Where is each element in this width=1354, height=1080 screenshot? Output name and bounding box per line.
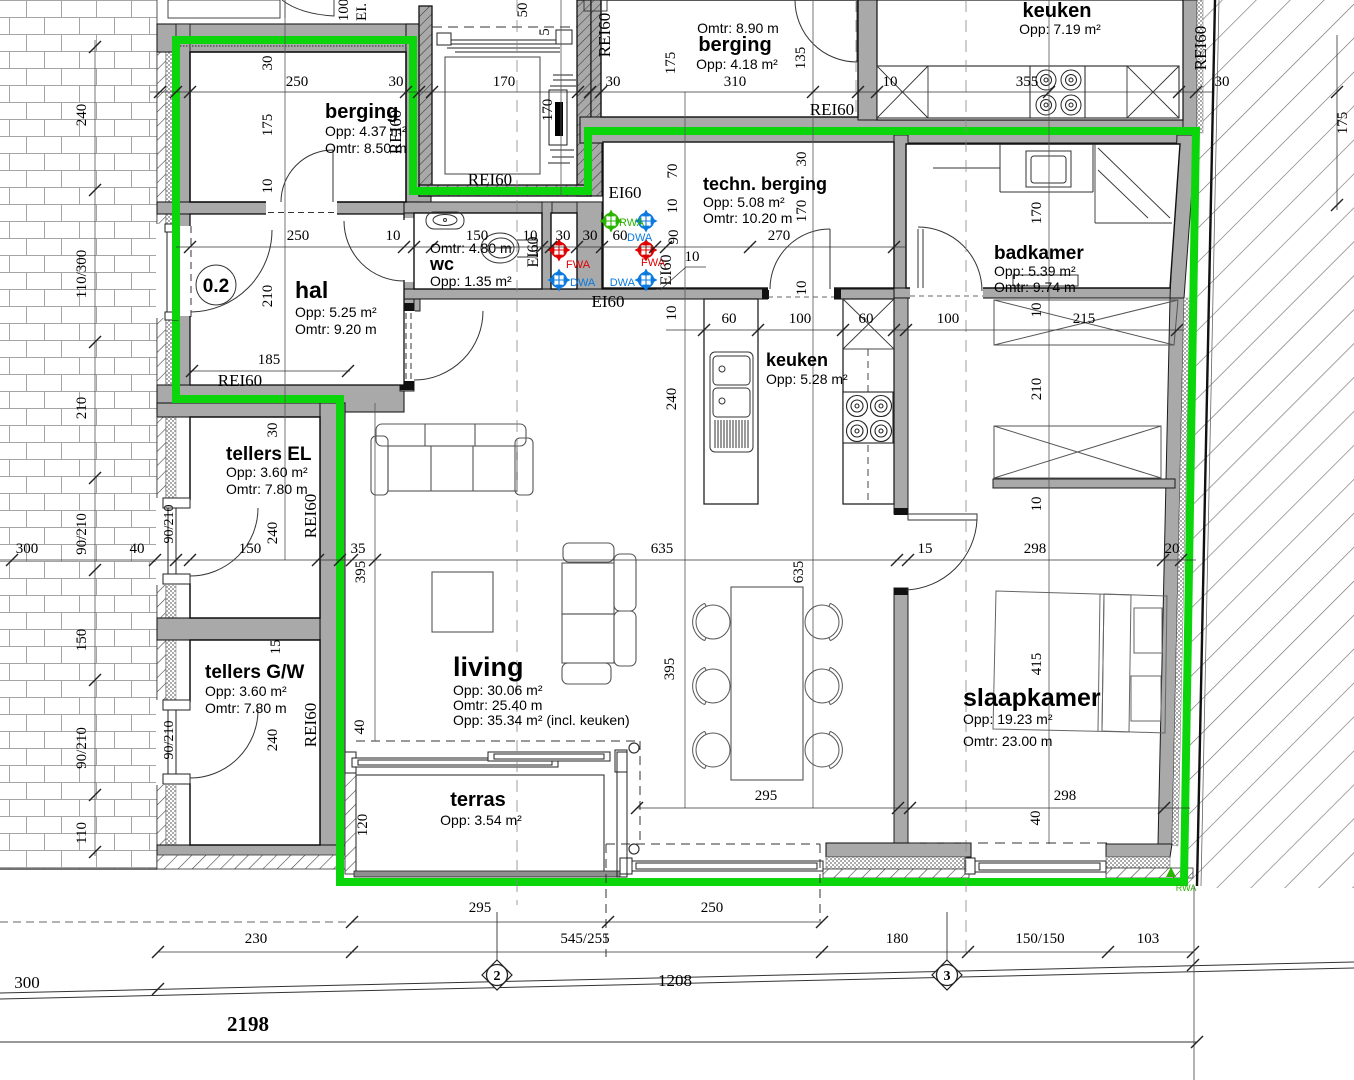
- svg-text:310: 310: [724, 74, 747, 90]
- svg-text:635: 635: [651, 541, 674, 557]
- svg-text:10: 10: [794, 281, 810, 296]
- svg-text:15: 15: [918, 541, 933, 557]
- svg-text:150: 150: [74, 629, 90, 652]
- svg-text:REI60: REI60: [468, 170, 512, 189]
- svg-text:Omtr: 7.80 m: Omtr: 7.80 m: [205, 700, 287, 716]
- svg-text:240: 240: [664, 388, 680, 411]
- svg-text:keuken: keuken: [1023, 0, 1092, 22]
- svg-text:30: 30: [794, 152, 810, 167]
- svg-text:30: 30: [1215, 74, 1230, 90]
- svg-text:110/300: 110/300: [74, 250, 90, 299]
- svg-text:545/255: 545/255: [560, 931, 609, 947]
- svg-text:355: 355: [1016, 74, 1039, 90]
- svg-text:20: 20: [1165, 541, 1180, 557]
- svg-text:tellers G/W: tellers G/W: [205, 662, 304, 683]
- svg-text:35: 35: [351, 541, 366, 557]
- svg-text:150: 150: [239, 541, 262, 557]
- svg-text:100: 100: [937, 311, 960, 327]
- svg-text:badkamer: badkamer: [994, 243, 1084, 264]
- svg-text:10: 10: [685, 249, 700, 265]
- svg-text:Opp: 35.34 m² (incl. keuken): Opp: 35.34 m² (incl. keuken): [453, 712, 630, 728]
- svg-text:90/210: 90/210: [74, 513, 90, 555]
- svg-text:REI60: REI60: [1191, 26, 1210, 70]
- svg-text:90/210: 90/210: [74, 727, 90, 769]
- svg-text:DWA: DWA: [627, 232, 653, 244]
- svg-text:2198: 2198: [227, 1012, 269, 1036]
- svg-text:298: 298: [1054, 788, 1077, 804]
- svg-text:90: 90: [666, 230, 682, 245]
- svg-text:EI60: EI60: [608, 183, 641, 202]
- svg-text:175: 175: [663, 52, 679, 75]
- svg-text:60: 60: [613, 228, 628, 244]
- svg-text:Opp: 4.18 m²: Opp: 4.18 m²: [696, 56, 778, 72]
- svg-text:FWA: FWA: [566, 259, 591, 271]
- svg-text:berging: berging: [325, 101, 398, 123]
- svg-text:103: 103: [1137, 931, 1160, 947]
- svg-text:REI60: REI60: [301, 494, 320, 538]
- svg-text:REI60: REI60: [810, 100, 854, 119]
- svg-text:Opp: 1.35 m²: Opp: 1.35 m²: [430, 273, 512, 289]
- svg-text:Omtr: 23.00 m: Omtr: 23.00 m: [963, 733, 1052, 749]
- svg-text:395: 395: [662, 658, 678, 681]
- svg-text:90/210: 90/210: [162, 721, 177, 760]
- svg-text:5: 5: [537, 28, 553, 36]
- svg-text:70: 70: [665, 164, 681, 179]
- svg-text:10: 10: [1029, 303, 1045, 318]
- svg-text:Omtr: 7.80 m: Omtr: 7.80 m: [226, 481, 308, 497]
- svg-text:3: 3: [944, 969, 951, 984]
- svg-text:30: 30: [583, 228, 598, 244]
- svg-text:110: 110: [74, 822, 90, 844]
- svg-text:Opp: 5.25 m²: Opp: 5.25 m²: [295, 304, 377, 320]
- svg-text:Opp: 30.06 m²: Opp: 30.06 m²: [453, 682, 543, 698]
- svg-text:135: 135: [793, 47, 809, 70]
- svg-text:150/150: 150/150: [1015, 931, 1064, 947]
- svg-text:10: 10: [1029, 497, 1045, 512]
- svg-text:REI60: REI60: [301, 703, 320, 747]
- svg-text:10: 10: [386, 228, 401, 244]
- svg-text:40: 40: [352, 720, 368, 735]
- svg-text:REI60: REI60: [595, 13, 614, 57]
- svg-text:wc: wc: [429, 254, 454, 274]
- svg-text:90/210: 90/210: [162, 505, 177, 544]
- svg-text:230: 230: [245, 931, 268, 947]
- svg-text:395: 395: [353, 561, 369, 584]
- svg-text:Omtr: 9.20 m: Omtr: 9.20 m: [295, 321, 377, 337]
- svg-text:Opp: 19.23 m²: Opp: 19.23 m²: [963, 711, 1053, 727]
- svg-text:Opp: 3.60 m²: Opp: 3.60 m²: [205, 683, 287, 699]
- svg-text:185: 185: [258, 352, 281, 368]
- svg-text:EI60: EI60: [658, 254, 675, 285]
- svg-text:10: 10: [664, 306, 680, 321]
- svg-text:295: 295: [469, 900, 492, 916]
- svg-text:170: 170: [794, 200, 810, 223]
- svg-text:2: 2: [494, 969, 501, 984]
- svg-text:0.2: 0.2: [203, 276, 229, 297]
- svg-text:635: 635: [791, 561, 807, 584]
- svg-text:240: 240: [265, 522, 281, 545]
- svg-text:40: 40: [130, 541, 145, 557]
- svg-text:EI.: EI.: [354, 3, 370, 21]
- svg-text:240: 240: [265, 729, 281, 752]
- svg-text:30: 30: [606, 74, 621, 90]
- svg-text:30: 30: [260, 56, 276, 71]
- svg-text:210: 210: [1029, 378, 1045, 401]
- svg-text:10: 10: [883, 74, 898, 90]
- svg-text:40: 40: [1028, 811, 1044, 826]
- svg-text:DWA: DWA: [570, 277, 596, 289]
- svg-text:120: 120: [355, 814, 371, 837]
- svg-text:slaapkamer: slaapkamer: [963, 684, 1101, 712]
- svg-text:techn. berging: techn. berging: [703, 174, 827, 194]
- svg-text:30: 30: [556, 228, 571, 244]
- svg-text:EI60: EI60: [525, 236, 542, 267]
- svg-text:300: 300: [16, 541, 39, 557]
- svg-text:215: 215: [1073, 311, 1096, 327]
- svg-text:10: 10: [260, 179, 276, 194]
- svg-text:keuken: keuken: [766, 350, 828, 370]
- svg-text:298: 298: [1024, 541, 1047, 557]
- svg-text:DWA: DWA: [610, 277, 636, 289]
- svg-text:berging: berging: [698, 34, 771, 56]
- svg-text:Omtr: 10.20 m: Omtr: 10.20 m: [703, 210, 792, 226]
- svg-text:415: 415: [1029, 653, 1045, 676]
- svg-text:300: 300: [14, 973, 40, 992]
- svg-text:Omtr: 8.50 m: Omtr: 8.50 m: [325, 140, 407, 156]
- svg-text:Opp: 5.08 m²: Opp: 5.08 m²: [703, 194, 785, 210]
- svg-text:15: 15: [268, 640, 284, 655]
- svg-text:Opp: 4.37 m²: Opp: 4.37 m²: [325, 123, 407, 139]
- svg-text:170: 170: [493, 74, 516, 90]
- svg-text:30: 30: [265, 423, 281, 438]
- svg-text:tellers EL: tellers EL: [226, 444, 312, 465]
- svg-text:Opp: 5.39 m²: Opp: 5.39 m²: [994, 263, 1076, 279]
- svg-text:210: 210: [260, 285, 276, 308]
- svg-text:EI60: EI60: [591, 292, 624, 311]
- svg-text:living: living: [453, 652, 524, 682]
- svg-text:295: 295: [755, 788, 778, 804]
- svg-text:Opp: 3.60 m²: Opp: 3.60 m²: [226, 464, 308, 480]
- svg-text:175: 175: [260, 114, 276, 137]
- svg-text:30: 30: [389, 74, 404, 90]
- svg-text:Opp: 5.28 m²: Opp: 5.28 m²: [766, 371, 848, 387]
- svg-text:100: 100: [789, 311, 812, 327]
- svg-text:180: 180: [886, 931, 909, 947]
- svg-text:100: 100: [336, 0, 352, 21]
- svg-text:Opp: 7.19 m²: Opp: 7.19 m²: [1019, 21, 1101, 37]
- svg-text:50: 50: [515, 3, 531, 18]
- svg-text:270: 270: [768, 228, 791, 244]
- svg-text:210: 210: [74, 397, 90, 420]
- svg-text:60: 60: [859, 311, 874, 327]
- svg-text:terras: terras: [450, 789, 506, 811]
- svg-text:REI60: REI60: [218, 371, 262, 390]
- svg-text:250: 250: [701, 900, 724, 916]
- svg-text:Opp: 3.54 m²: Opp: 3.54 m²: [440, 812, 522, 828]
- svg-text:Omtr: 25.40 m: Omtr: 25.40 m: [453, 697, 542, 713]
- svg-text:250: 250: [286, 74, 309, 90]
- svg-text:10: 10: [665, 199, 681, 214]
- svg-text:60: 60: [722, 311, 737, 327]
- svg-text:1208: 1208: [658, 971, 692, 990]
- svg-text:RWA: RWA: [1176, 883, 1197, 893]
- svg-text:250: 250: [287, 228, 310, 244]
- svg-text:hal: hal: [295, 277, 328, 303]
- svg-text:170: 170: [540, 99, 556, 122]
- svg-text:Omtr: 9.74 m: Omtr: 9.74 m: [994, 279, 1076, 295]
- svg-text:240: 240: [74, 104, 90, 127]
- svg-text:170: 170: [1029, 202, 1045, 225]
